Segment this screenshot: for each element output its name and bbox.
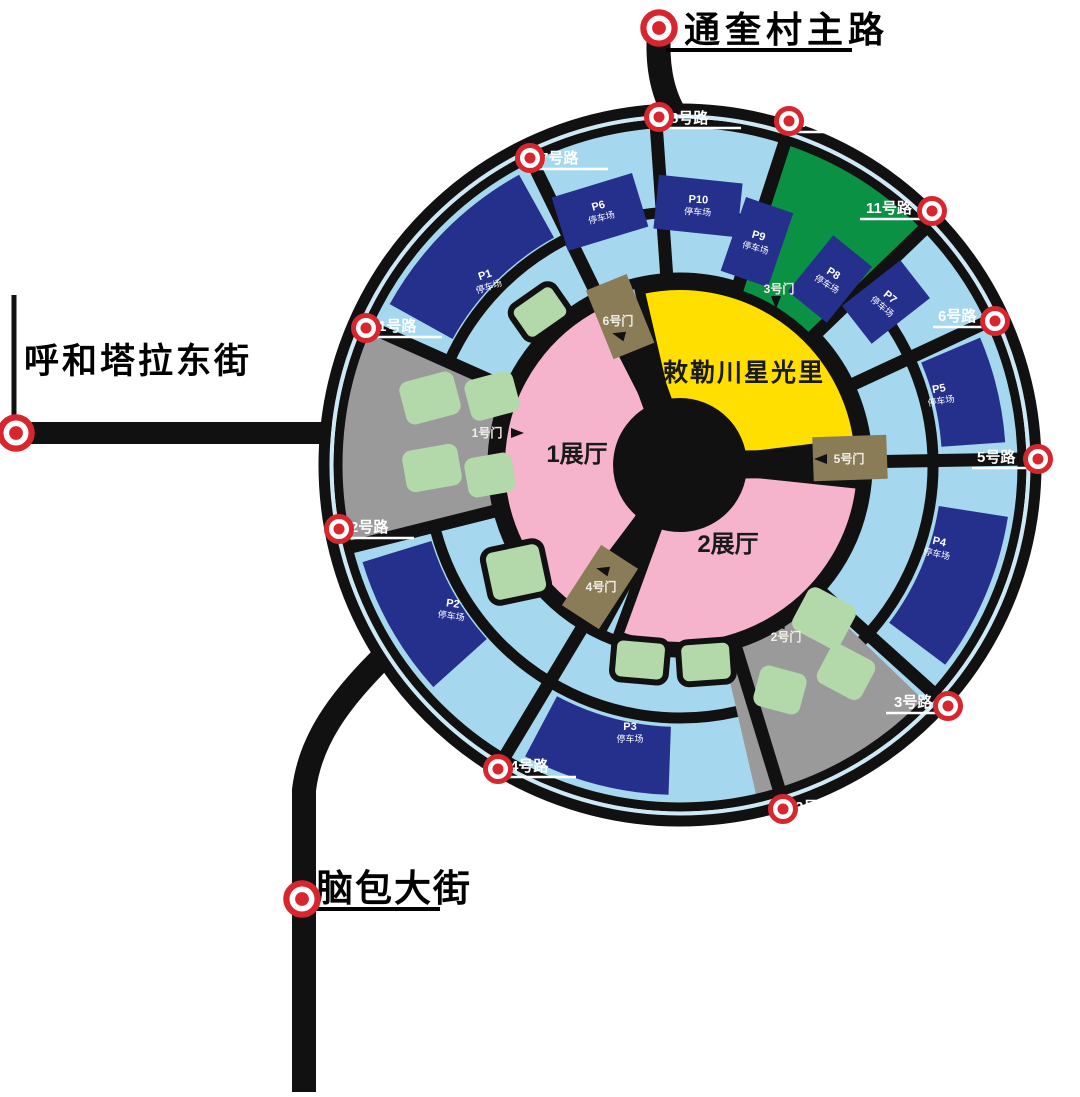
- svg-text:停车场: 停车场: [616, 733, 643, 744]
- street-name-south: 脑包大街: [316, 868, 472, 909]
- road-label-6: 6号路: [938, 307, 977, 325]
- svg-text:2号门: 2号门: [771, 629, 802, 644]
- svg-text:1号门: 1号门: [472, 425, 503, 440]
- svg-text:3号门: 3号门: [764, 281, 795, 296]
- road-label-1: 1号路: [378, 317, 417, 335]
- road-marker-icon: [777, 109, 802, 134]
- road-label-3: 3号路: [894, 693, 933, 711]
- road-label-4: 4号路: [510, 757, 549, 775]
- svg-text:P5: P5: [931, 382, 946, 396]
- parking-p10-block: [653, 175, 742, 237]
- road-marker-icon: [486, 757, 511, 782]
- garden-plot: [678, 639, 735, 685]
- road-marker-icon: [983, 309, 1008, 334]
- garden-plot: [463, 451, 517, 499]
- road-marker-icon: [354, 316, 379, 341]
- road-label-7: 7号路: [540, 149, 579, 167]
- road-marker-icon: [1026, 447, 1051, 472]
- venue-name: 敕勒川星光里: [663, 358, 825, 387]
- venue-map: 通奎村主路 呼和塔拉东街 脑包大街 8号路 10号路 7号路 11号路 6号路 …: [0, 0, 1080, 1092]
- svg-text:P2: P2: [445, 597, 460, 611]
- road-label-10: 10号路: [797, 113, 845, 131]
- garden-plot: [481, 539, 551, 604]
- road-marker-icon: [327, 517, 352, 542]
- road-marker-icon: [518, 146, 543, 171]
- central-hub: [622, 407, 738, 523]
- street-name-top: 通奎村主路: [684, 9, 889, 50]
- hall1-label: 1展厅: [546, 441, 607, 468]
- street-west-marker-icon: [0, 417, 31, 448]
- road-label-2w: 2号路: [350, 518, 389, 536]
- svg-text:6号门: 6号门: [603, 313, 634, 328]
- road-label-11: 11号路: [866, 199, 913, 217]
- road-marker-icon: [920, 199, 945, 224]
- svg-text:5号门: 5号门: [834, 451, 865, 466]
- venue-map-page: 通奎村主路 呼和塔拉东街 脑包大街 8号路 10号路 7号路 11号路 6号路 …: [0, 0, 1080, 1092]
- svg-text:P3: P3: [623, 721, 636, 733]
- svg-text:P10: P10: [688, 194, 708, 207]
- hall2-label: 2展厅: [697, 531, 758, 558]
- svg-text:停车场: 停车场: [684, 205, 712, 217]
- street-name-west: 呼和塔拉东街: [24, 342, 252, 381]
- road-marker-icon: [647, 105, 672, 130]
- svg-text:4号门: 4号门: [586, 579, 617, 594]
- road-marker-icon: [771, 797, 796, 822]
- garden-plot: [611, 637, 668, 684]
- road-marker-icon: [936, 694, 961, 719]
- road-label-8: 8号路: [670, 109, 709, 127]
- road-label-5: 5号路: [977, 448, 1016, 466]
- road-label-2se: 2号路: [795, 798, 834, 816]
- street-top-marker-icon: [643, 12, 674, 43]
- street-south-marker-icon: [286, 883, 317, 914]
